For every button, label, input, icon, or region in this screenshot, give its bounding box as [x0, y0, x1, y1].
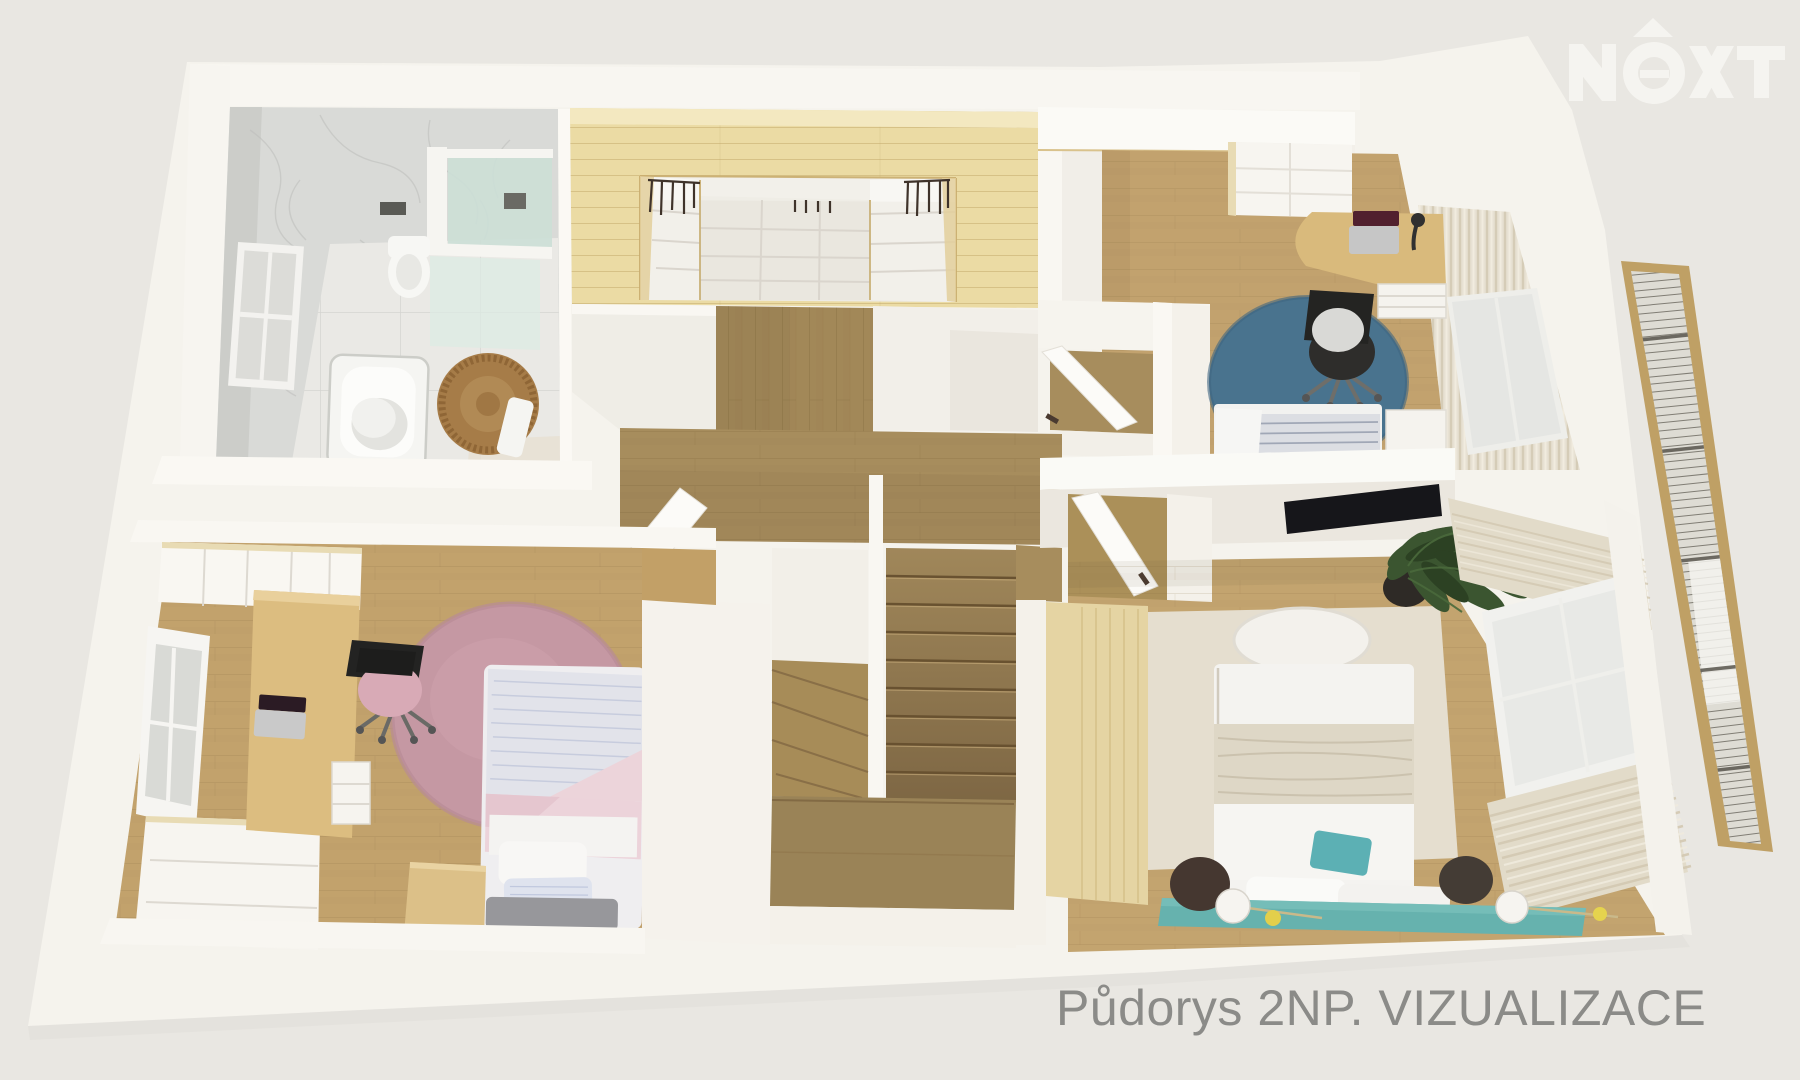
svg-text:Půdorys 2NP. VIZUALIZACE: Půdorys 2NP. VIZUALIZACE [1056, 980, 1706, 1036]
